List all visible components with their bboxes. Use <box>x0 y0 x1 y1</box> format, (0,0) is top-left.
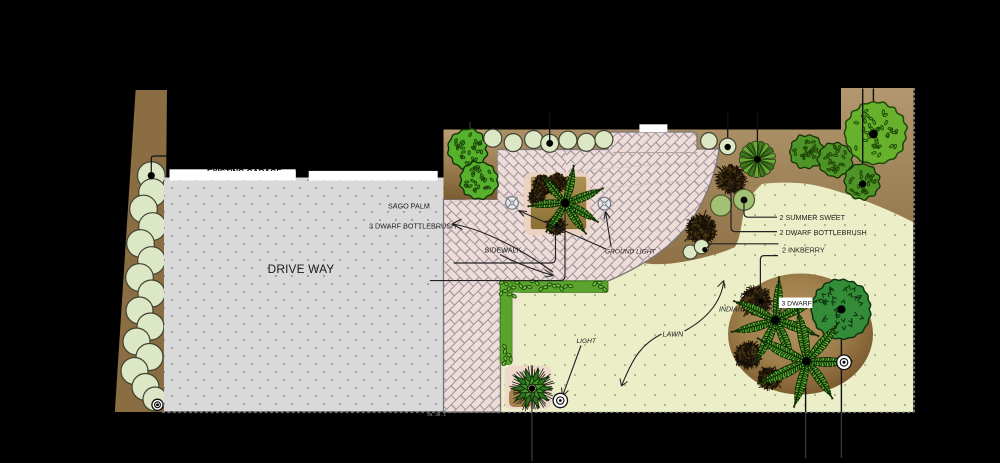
svg-text:LAWN: LAWN <box>663 330 684 339</box>
svg-text:2 SUMMER SWEET: 2 SUMMER SWEET <box>780 213 846 222</box>
svg-text:GROUND LIGHT: GROUND LIGHT <box>605 249 657 256</box>
svg-text:2 DWARF BOTTLEBRUSH: 2 DWARF BOTTLEBRUSH <box>780 228 867 237</box>
svg-text:2 INKBERRY: 2 INKBERRY <box>782 246 825 255</box>
svg-text:SAGO PALM: SAGO PALM <box>388 202 430 211</box>
svg-text:SIDEWALK: SIDEWALK <box>485 246 522 255</box>
svg-text:3 DWARF BOTTLEBRUSH: 3 DWARF BOTTLEBRUSH <box>369 222 456 231</box>
svg-text:LIGHT: LIGHT <box>577 338 597 345</box>
svg-text:3 DWARF: 3 DWARF <box>782 301 812 308</box>
svg-text:36.36.1: 36.36.1 <box>427 412 446 418</box>
svg-text:DRIVE WAY: DRIVE WAY <box>268 262 335 276</box>
